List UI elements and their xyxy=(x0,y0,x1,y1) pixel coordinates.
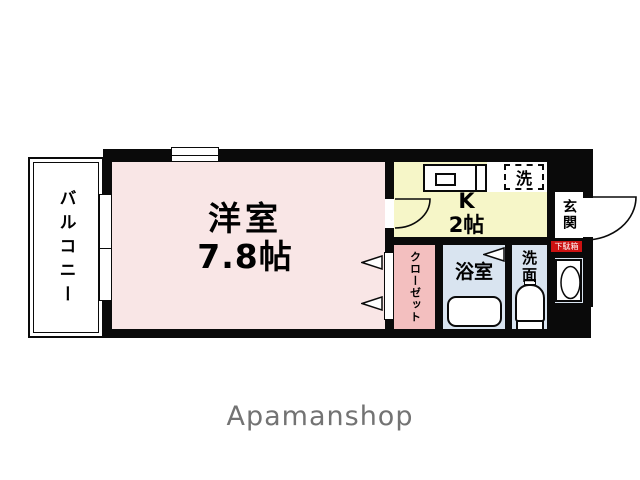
main-room-size: 7.8帖 xyxy=(120,238,370,276)
closet-label: クローゼット xyxy=(394,248,435,326)
bathtub-icon xyxy=(447,296,502,327)
washbasin-icon xyxy=(555,259,582,302)
entrance-door-arc xyxy=(584,196,638,242)
closet-door-panel xyxy=(384,252,394,320)
kitchen-counter xyxy=(423,164,487,192)
wall-bath-washroom xyxy=(505,245,512,333)
kitchen-label: K 2帖 xyxy=(394,190,539,237)
closet-door-triangle-bottom xyxy=(361,296,383,311)
counter-divider xyxy=(475,166,477,190)
wall-main-kitchen-top xyxy=(385,162,394,199)
kitchen-sink-icon xyxy=(435,173,456,186)
kitchen-name: K xyxy=(394,190,539,214)
wall-kitchen-bottom xyxy=(385,237,547,245)
kitchen-door-opening xyxy=(385,199,394,228)
main-room-label: 洋室 7.8帖 xyxy=(120,200,370,275)
window-sash-line xyxy=(172,155,218,156)
washer-box-icon: 洗 xyxy=(504,164,544,190)
shoe-cabinet-badge: 下駄箱 xyxy=(551,241,582,252)
wall-bottom xyxy=(103,329,549,338)
kitchen-size: 2帖 xyxy=(394,214,539,238)
laundry-label: 洗 xyxy=(516,165,532,189)
bathroom-label: 浴室 xyxy=(443,257,505,284)
floorplan-image: 洗 洋室 7.8帖 K 2帖 バルコニー 玄関 クローゼット 浴室 洗面 下駄箱… xyxy=(0,0,640,480)
wall-closet-bath xyxy=(435,245,443,329)
top-window-symbol xyxy=(171,147,219,162)
wall-bottomright-block xyxy=(545,303,591,338)
balcony-label: バルコニー xyxy=(28,168,104,330)
wall-right-upper xyxy=(583,149,593,198)
main-room-name: 洋室 xyxy=(120,200,370,238)
apamanshop-logo-text: Apamanshop xyxy=(0,401,640,432)
wall-main-kitchen-bottom xyxy=(385,320,394,338)
entrance-label: 玄関 xyxy=(555,194,583,236)
wall-kitchen-entrance xyxy=(547,192,555,240)
washroom-label: 洗面 xyxy=(512,250,547,288)
